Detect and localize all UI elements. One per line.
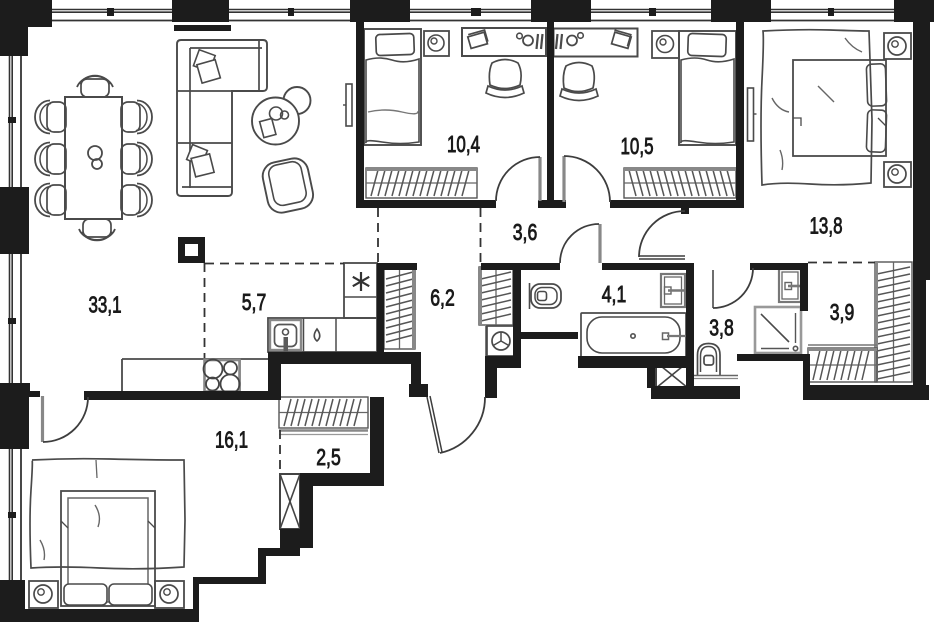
svg-text:3,6: 3,6 [513, 219, 538, 245]
svg-text:16,1: 16,1 [215, 427, 248, 453]
svg-text:10,5: 10,5 [621, 133, 654, 159]
svg-text:2,5: 2,5 [316, 444, 341, 470]
svg-text:3,8: 3,8 [709, 315, 734, 341]
svg-text:4,1: 4,1 [602, 281, 627, 307]
svg-text:5,7: 5,7 [242, 289, 267, 315]
svg-text:33,1: 33,1 [89, 292, 122, 318]
svg-text:6,2: 6,2 [430, 285, 455, 311]
svg-text:3,9: 3,9 [830, 299, 855, 325]
svg-text:10,4: 10,4 [447, 131, 480, 157]
svg-text:13,8: 13,8 [810, 213, 843, 239]
